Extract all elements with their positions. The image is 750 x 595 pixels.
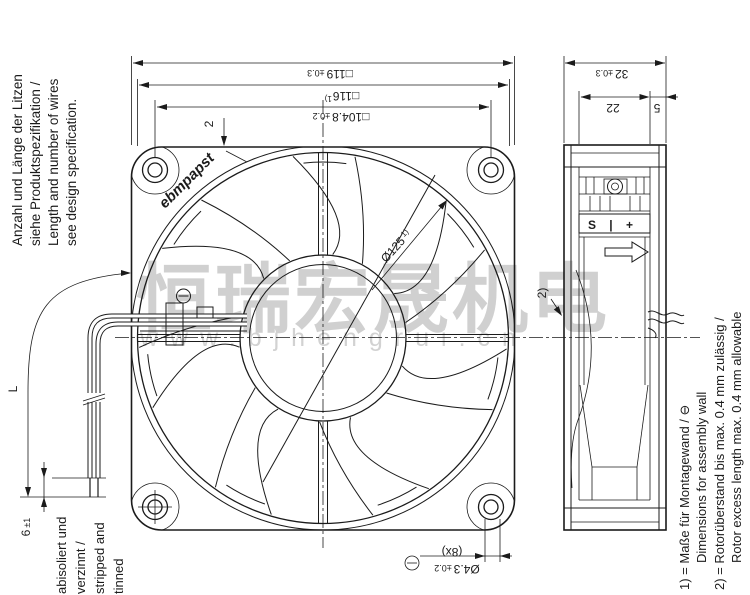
strip-note-line4: tinned [111, 559, 126, 594]
wire-note-line2: siehe Produktspezifikation / [28, 81, 43, 246]
footnote-2-en: Rotor excess length max. 0.4 mm allowabl… [729, 312, 744, 563]
mounting-holes [138, 158, 504, 525]
dim-wall-size: □1161) [324, 89, 359, 103]
dim-wire-length: L [6, 385, 20, 392]
dim-frame-size: □119±0.3 [307, 67, 353, 81]
blade-silhouette [571, 270, 591, 488]
wire-length-dim-curve [28, 273, 129, 490]
strip-note-line2: verzinnt / [73, 541, 88, 594]
side-motor-details: S | + [571, 177, 650, 500]
dimension-labels: □119±0.3 □1161) □104.8±0.2 2 Ø1251) 32±0… [6, 67, 660, 576]
screw-icon [608, 179, 623, 194]
wire-note-line1: Anzahl und Länge der Litzen [10, 74, 25, 246]
dim-hole-spacing: □104.8±0.2 [313, 110, 370, 124]
dim-rear-depth: 5 [653, 101, 660, 115]
dim-front-depth: 22 [606, 101, 620, 115]
airflow-arrow-icon [605, 242, 648, 262]
section-line [263, 175, 435, 482]
dim-depth: 32±0.3 [596, 67, 629, 81]
dim-hole-diameter: Ø4.3±0.2 [434, 562, 479, 576]
wire-note-line4: see design specification. [64, 99, 79, 246]
front-view: ebmpapst [83, 146, 515, 531]
footnote-1-en: Dimensions for assembly wall [694, 392, 709, 563]
dim-hole-count: (8x) [442, 545, 463, 559]
dim-venturi-lip: 2 [202, 120, 216, 127]
dim-strip-length: 6±1 [19, 518, 33, 537]
ref2-label: 2) [535, 288, 549, 299]
wire-note-line3: Length and number of wires [46, 78, 61, 246]
footnote-2-de: 2) = Rotorüberstand bis max. 0.4 mm zulä… [712, 317, 727, 590]
fan-drawing-svg: ebmpapst [0, 0, 750, 595]
strip-note-line3: stripped and [92, 522, 107, 594]
terminal-markings: S | + [588, 218, 638, 232]
strip-note-line1: abisoliert und [54, 517, 69, 594]
lead-wires [83, 316, 247, 497]
footnote-1-de: 1) = Maße für Montagewand / ⊖ [677, 405, 692, 590]
technical-drawing-canvas: 恒瑞宏晟机电 www.bjhengrui.cn [0, 0, 750, 595]
